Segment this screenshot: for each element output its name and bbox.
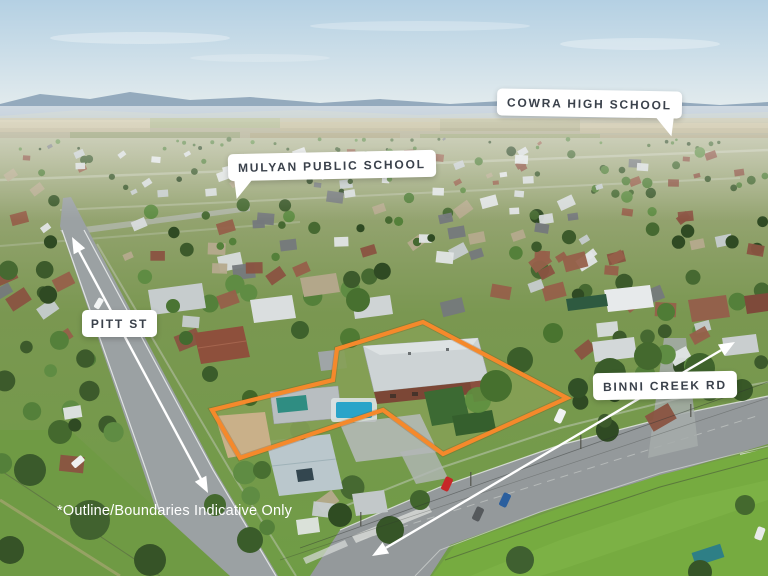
label-cowra-pointer-tail: [655, 117, 673, 136]
label-pitt-st: PITT ST: [82, 310, 157, 337]
label-binni-creek-rd: BINNI CREEK RD: [593, 371, 737, 401]
aerial-photo-scene: [0, 0, 768, 576]
label-pitt-st-text: PITT ST: [91, 317, 148, 331]
label-binni-creek-rd-text: BINNI CREEK RD: [603, 377, 727, 393]
label-mulyan-public-school-text: MULYAN PUBLIC SCHOOL: [238, 157, 426, 175]
label-mulyan-public-school: MULYAN PUBLIC SCHOOL: [228, 150, 436, 181]
label-mulyan-pointer-tail: [234, 180, 252, 199]
label-cowra-high-school-text: COWRA HIGH SCHOOL: [507, 95, 672, 112]
aerial-photo: COWRA HIGH SCHOOL MULYAN PUBLIC SCHOOL P…: [0, 0, 768, 576]
boundaries-disclaimer: *Outline/Boundaries Indicative Only: [57, 503, 292, 519]
label-cowra-high-school: COWRA HIGH SCHOOL: [497, 88, 682, 118]
